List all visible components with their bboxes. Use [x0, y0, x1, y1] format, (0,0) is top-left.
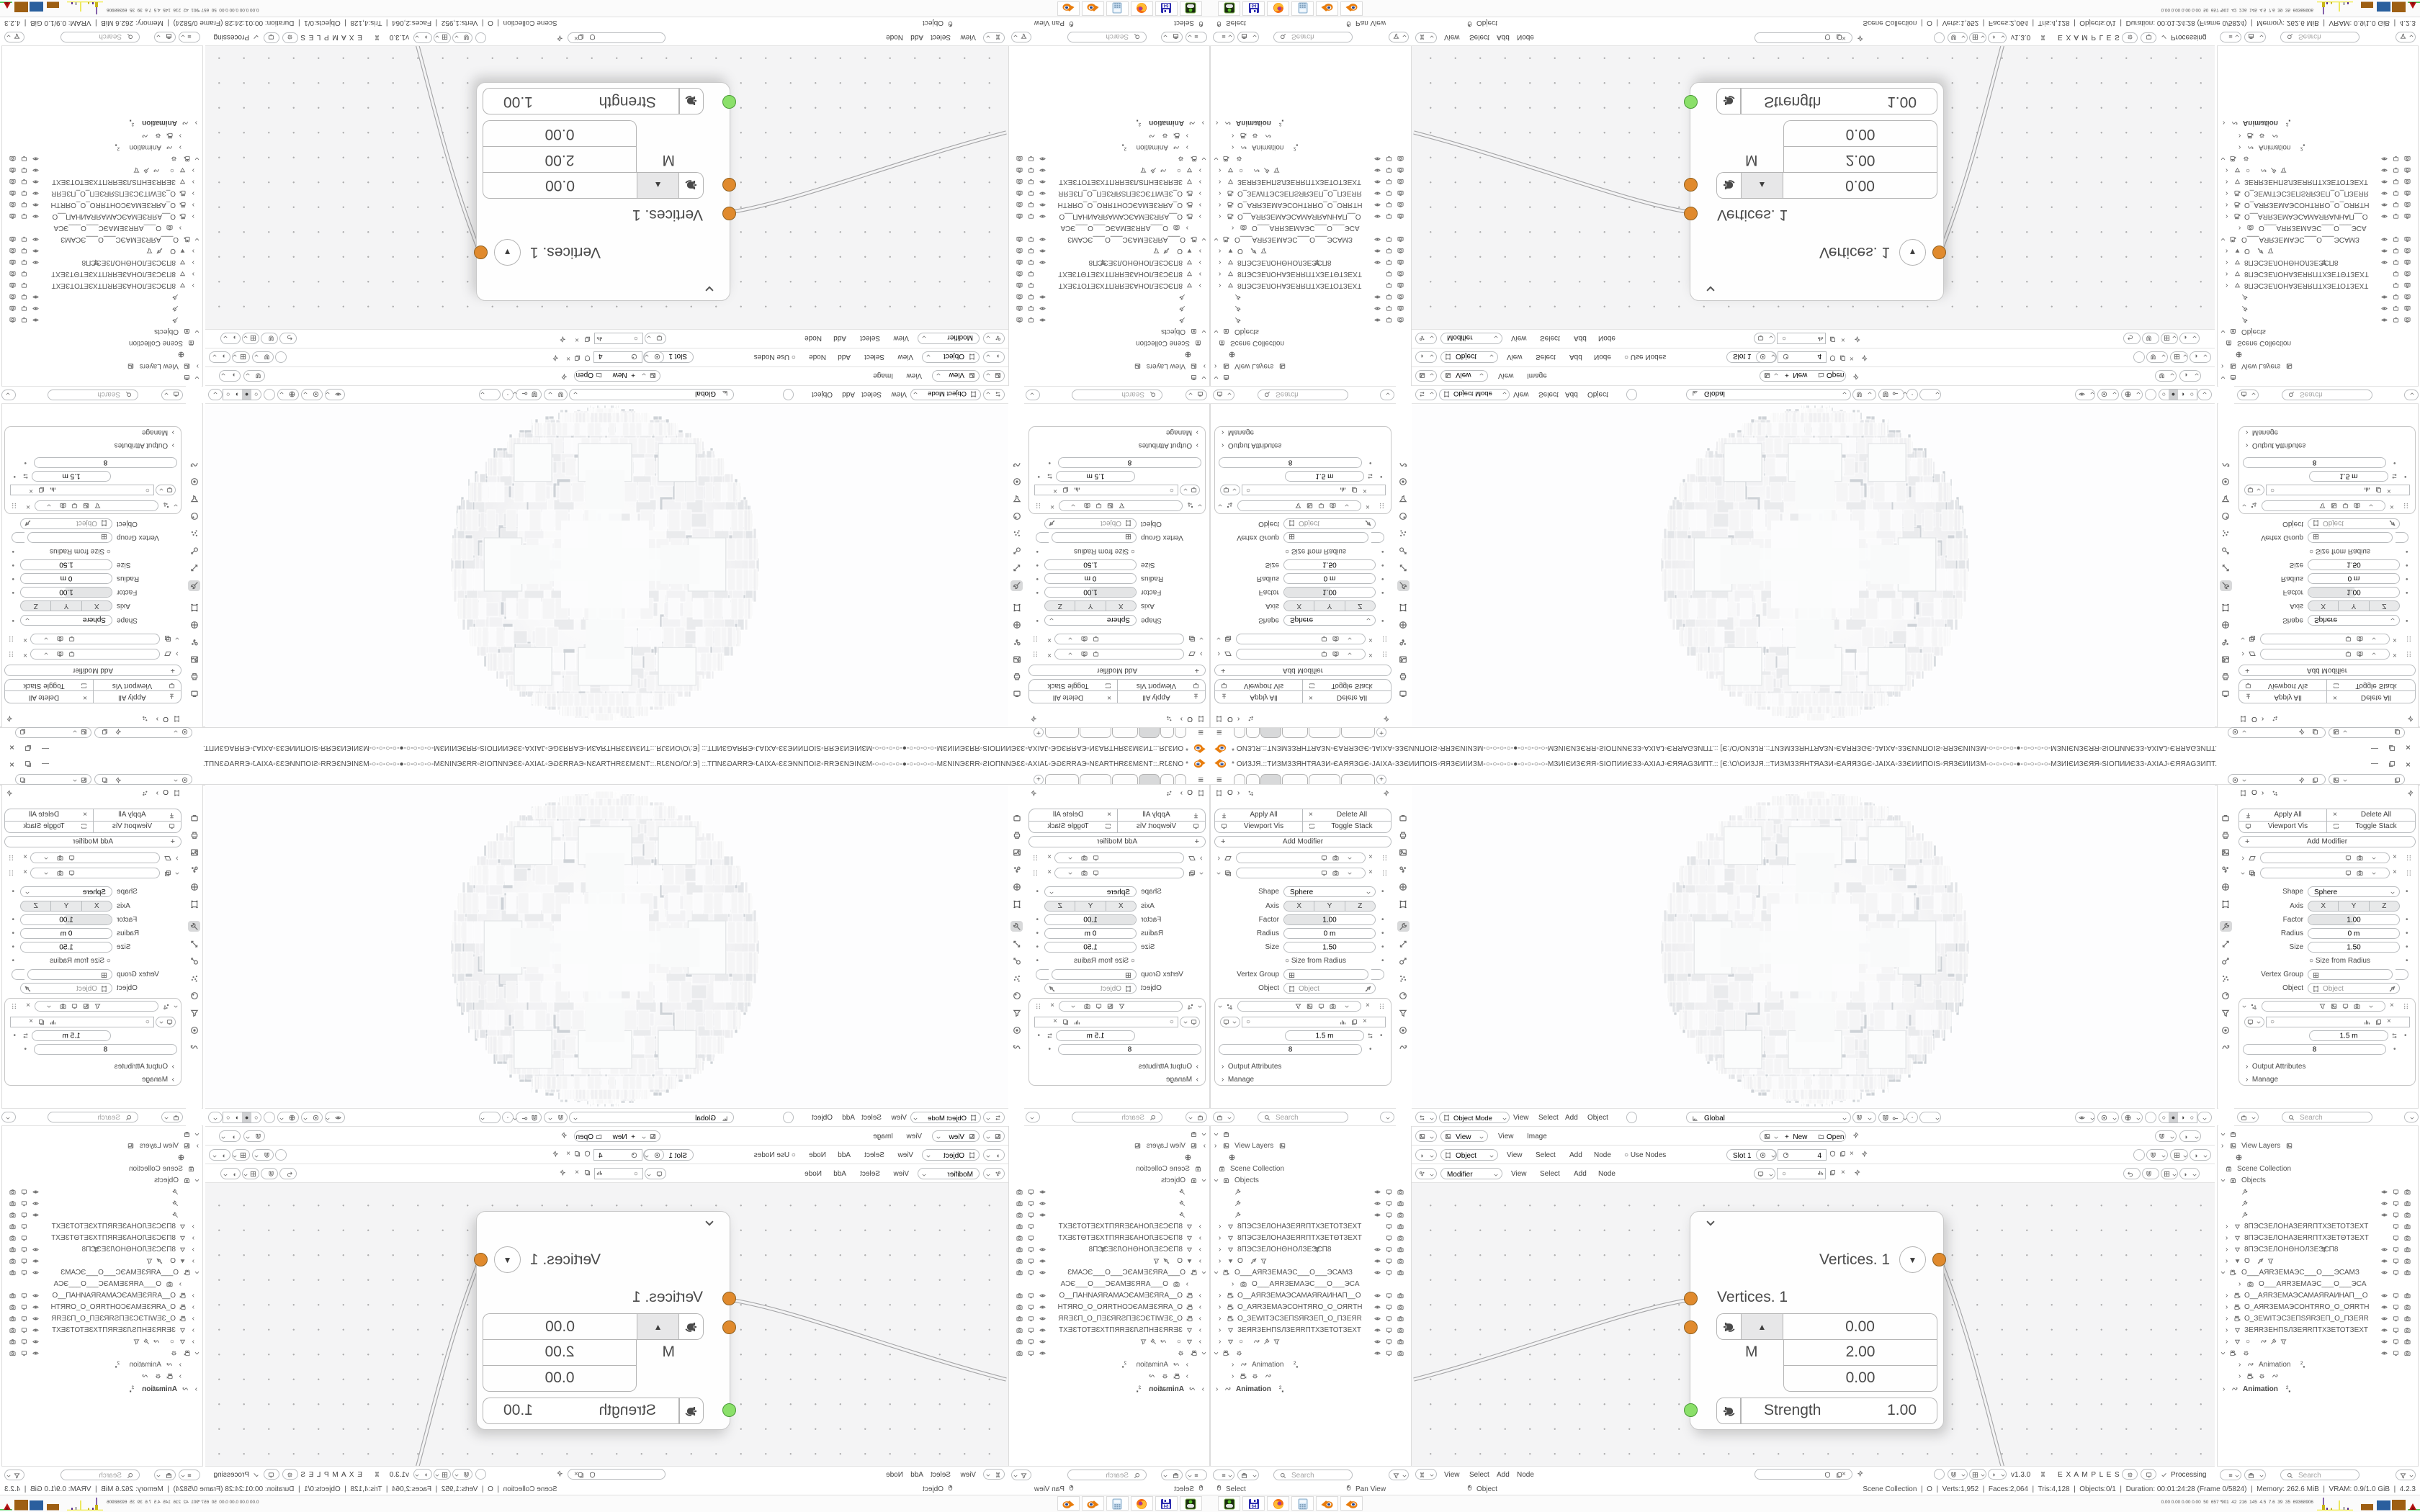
svg-text:64: 64: [1252, 1505, 1257, 1509]
svg-text:64: 64: [1163, 1505, 1168, 1509]
svg-text:64: 64: [1252, 3, 1257, 7]
svg-text:64: 64: [1163, 3, 1168, 7]
